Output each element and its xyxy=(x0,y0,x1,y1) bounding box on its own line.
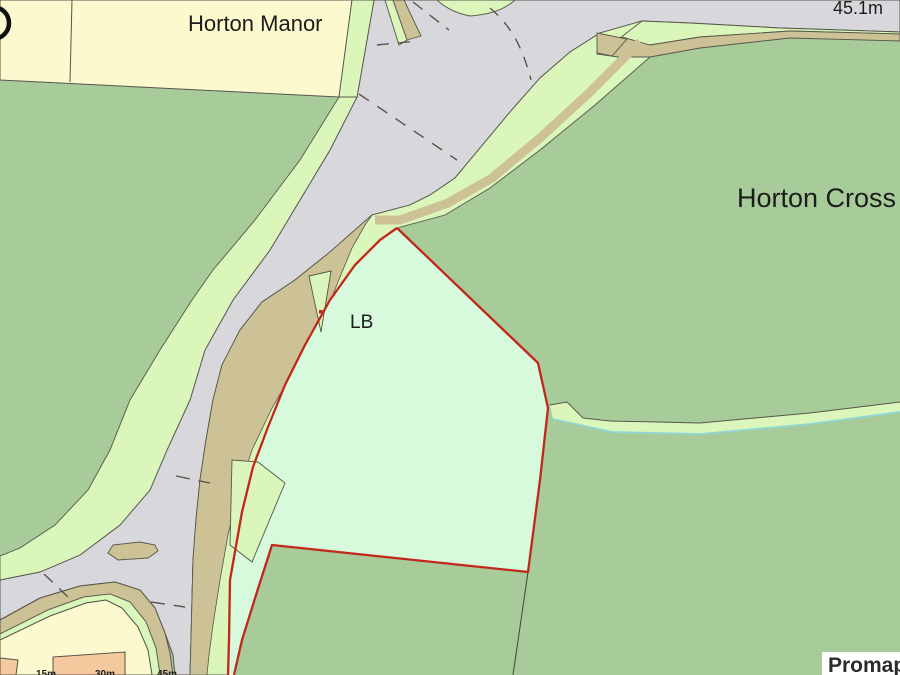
map-canvas[interactable]: Horton Manor 45.1m Horton Cross LB 15m 3… xyxy=(0,0,900,675)
scale-tick-45m: 45m xyxy=(157,669,177,675)
map-viewport[interactable]: Horton Manor 45.1m Horton Cross LB 15m 3… xyxy=(0,0,900,675)
building-small xyxy=(0,658,18,675)
scale-tick-15m: 15m xyxy=(36,669,56,675)
label-letter-box: LB xyxy=(350,312,373,333)
label-horton-manor: Horton Manor xyxy=(188,11,323,36)
scale-tick-30m: 30m xyxy=(95,669,115,675)
lb-marker-dot xyxy=(319,310,323,314)
promap-logo: Promap xyxy=(828,654,900,675)
label-spot-height: 45.1m xyxy=(833,0,883,18)
label-horton-cross: Horton Cross xyxy=(737,183,896,213)
